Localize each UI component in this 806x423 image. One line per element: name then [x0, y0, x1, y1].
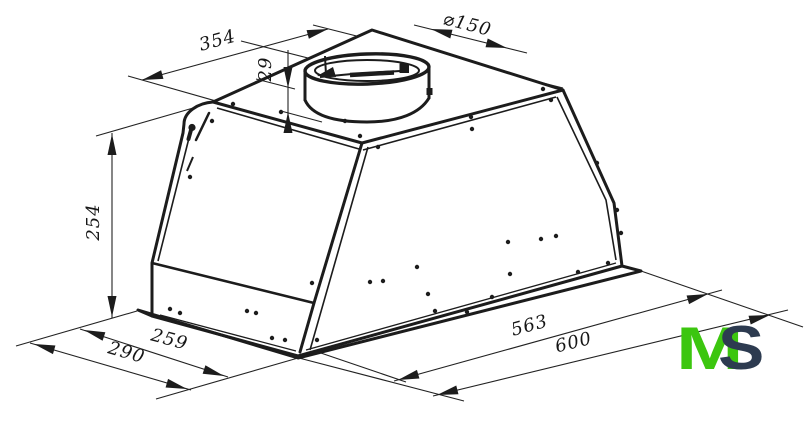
dimension-duct-diameter: ⌀150: [414, 9, 527, 53]
dim-label-254: 254: [83, 203, 104, 241]
dim-label-29: 29: [255, 57, 276, 83]
dim-label-354: 354: [197, 26, 239, 56]
logo-letter-s: S: [718, 318, 764, 380]
dim-label-563: 563: [509, 311, 551, 341]
dimension-depth-inner: 259: [80, 324, 228, 380]
dim-label-290: 290: [105, 337, 148, 368]
dim-label-259: 259: [148, 324, 190, 354]
ms-logo: MS: [676, 318, 759, 380]
dim-label-600: 600: [553, 328, 594, 357]
dimension-height: 254: [83, 133, 117, 318]
technical-drawing-canvas: 354 ⌀150 29 254 259 290: [0, 0, 806, 423]
